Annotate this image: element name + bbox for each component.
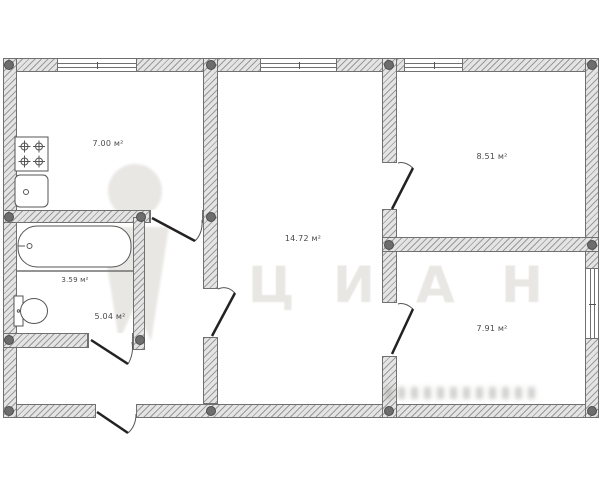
room-area-label-bedroom-bottom: 7.91 м²: [460, 324, 524, 334]
stove: [15, 137, 48, 171]
toilet: [14, 296, 48, 326]
room-area-label-kitchen: 7.00 м²: [76, 139, 140, 149]
door-kitchen: [152, 218, 202, 241]
room-area-label-bedroom-top: 8.51 м²: [460, 152, 524, 162]
room-area-label-toilet: 5.04 м²: [78, 312, 142, 322]
door-entrance: [97, 412, 136, 433]
room-area-label-bathroom: 3.59 м²: [43, 275, 107, 285]
door-bedroom-top: [392, 163, 413, 209]
bathtub: [18, 226, 131, 267]
kitchen-sink: [15, 175, 48, 207]
door-toilet: [91, 340, 133, 364]
door-living: [212, 288, 235, 336]
floor-plan: Ц И А Н: [0, 0, 600, 480]
blurred-watermark-text: [385, 387, 535, 399]
door-bedroom-bottom: [392, 304, 413, 354]
room-area-label-living: 14.72 м²: [271, 234, 335, 244]
